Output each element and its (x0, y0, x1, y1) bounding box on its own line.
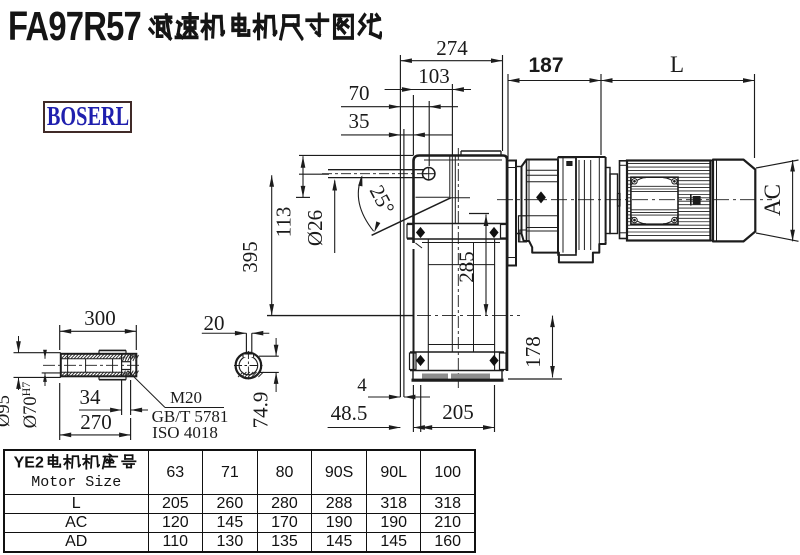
svg-text:70: 70 (349, 81, 370, 105)
svg-text:48.5: 48.5 (331, 401, 368, 425)
svg-text:20: 20 (204, 311, 225, 335)
svg-text:300: 300 (84, 306, 116, 330)
svg-text:35: 35 (349, 109, 370, 133)
svg-text:M20: M20 (170, 388, 202, 407)
svg-text:4: 4 (357, 375, 367, 396)
svg-text:Ø95: Ø95 (0, 395, 14, 427)
svg-text:34: 34 (80, 385, 102, 409)
svg-text:270: 270 (80, 410, 112, 434)
svg-text:25°: 25° (365, 181, 400, 218)
svg-text:274: 274 (436, 36, 468, 60)
svg-text:205: 205 (442, 400, 474, 424)
svg-text:74.9: 74.9 (249, 392, 273, 429)
svg-text:Ø70H7: Ø70H7 (19, 382, 41, 429)
svg-text:178: 178 (521, 336, 545, 368)
svg-text:ISO 4018: ISO 4018 (152, 423, 218, 442)
svg-text:Ø26: Ø26 (303, 210, 327, 246)
svg-text:AC: AC (760, 184, 785, 216)
svg-text:395: 395 (238, 241, 262, 273)
svg-text:187: 187 (528, 54, 563, 77)
svg-text:113: 113 (272, 207, 296, 238)
svg-text:103: 103 (418, 64, 450, 88)
svg-text:L: L (670, 52, 684, 77)
svg-text:285: 285 (455, 251, 479, 283)
